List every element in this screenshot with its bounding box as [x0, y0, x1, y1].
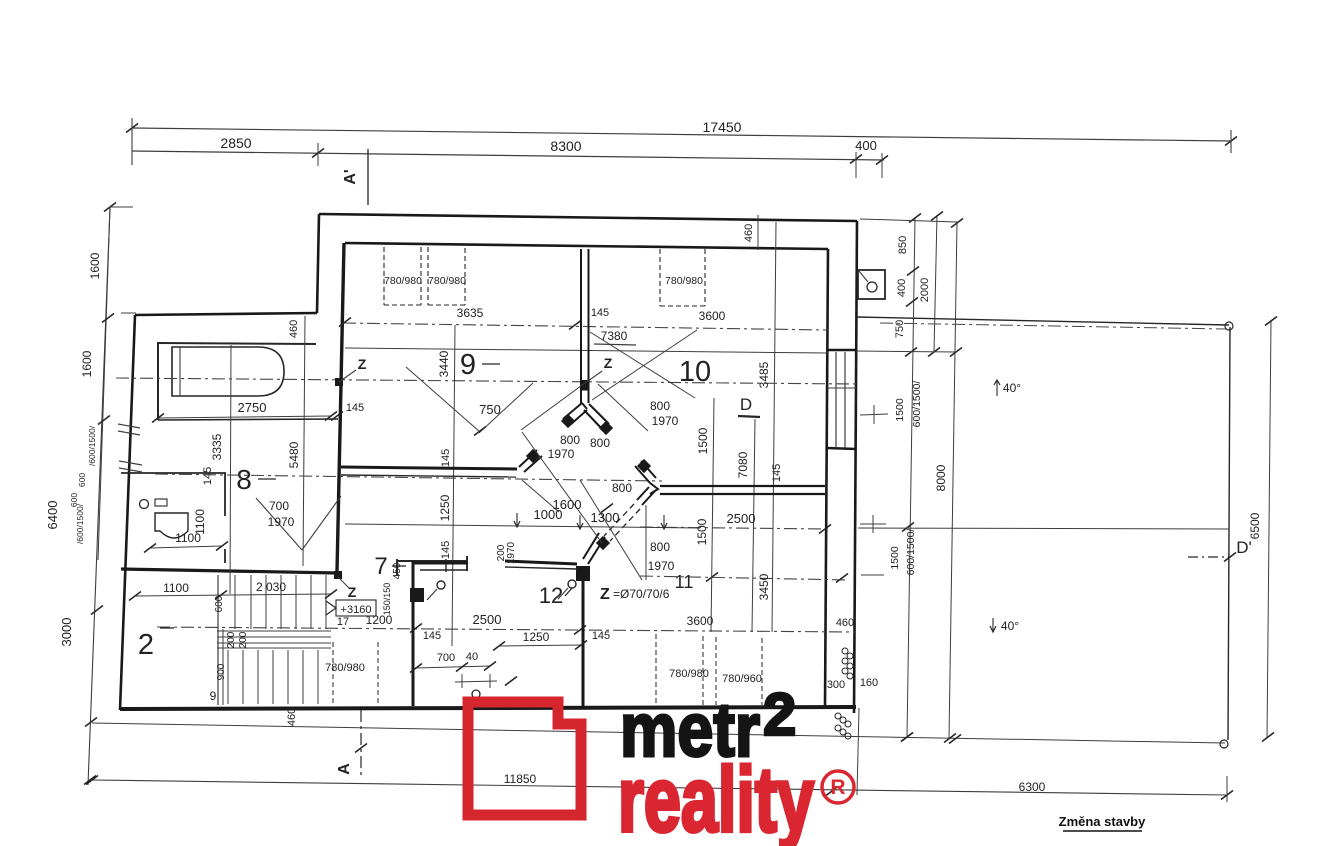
svg-text:/600/1500/: /600/1500/	[87, 425, 97, 466]
svg-text:Z: Z	[604, 355, 613, 371]
svg-text:A': A'	[342, 169, 359, 184]
svg-text:=Ø70/70/6: =Ø70/70/6	[613, 587, 670, 601]
svg-text:1100: 1100	[163, 581, 189, 595]
svg-text:3600: 3600	[687, 614, 714, 628]
svg-text:780/980: 780/980	[428, 275, 466, 287]
svg-text:200: 200	[226, 631, 237, 648]
svg-text:800: 800	[612, 481, 632, 495]
svg-text:/600/1500/: /600/1500/	[75, 503, 85, 544]
svg-text:12: 12	[539, 583, 563, 608]
svg-text:8300: 8300	[550, 138, 581, 154]
svg-text:reality: reality	[618, 749, 814, 846]
svg-text:2750: 2750	[238, 400, 267, 415]
svg-text:400: 400	[855, 138, 877, 153]
svg-text:800: 800	[590, 436, 610, 450]
svg-text:780/960: 780/960	[722, 673, 762, 685]
svg-text:7080: 7080	[736, 451, 750, 478]
svg-text:3335: 3335	[210, 433, 224, 460]
svg-text:1970: 1970	[648, 559, 675, 573]
svg-text:1500: 1500	[696, 427, 710, 454]
svg-text:1000: 1000	[534, 507, 563, 522]
svg-text:600: 600	[214, 595, 225, 612]
svg-text:750: 750	[479, 402, 501, 417]
svg-text:145: 145	[591, 307, 609, 319]
svg-text:1300: 1300	[591, 510, 620, 525]
svg-text:1970: 1970	[548, 447, 575, 461]
svg-text:145: 145	[202, 467, 214, 485]
svg-text:460: 460	[288, 320, 300, 338]
svg-text:450: 450	[392, 562, 403, 579]
svg-text:300: 300	[827, 679, 845, 691]
svg-text:D: D	[740, 395, 752, 414]
svg-text:600/1500/: 600/1500/	[905, 529, 917, 576]
svg-text:1250: 1250	[438, 494, 452, 521]
svg-text:2000: 2000	[919, 278, 931, 302]
svg-text:145: 145	[346, 402, 364, 414]
svg-text:Změna stavby: Změna stavby	[1059, 814, 1146, 829]
svg-text:800: 800	[560, 433, 580, 447]
svg-text:145: 145	[423, 630, 441, 642]
svg-text:1970: 1970	[652, 414, 679, 428]
svg-text:1100: 1100	[193, 509, 207, 535]
svg-text:3485: 3485	[757, 361, 771, 388]
svg-text:400: 400	[896, 279, 908, 297]
svg-text:Z: Z	[600, 586, 610, 603]
svg-text:3450: 3450	[757, 573, 771, 600]
svg-text:850: 850	[897, 236, 909, 254]
svg-text:3000: 3000	[59, 618, 74, 647]
svg-text:2500: 2500	[473, 612, 502, 627]
svg-text:6500: 6500	[1248, 512, 1262, 539]
svg-text:6300: 6300	[1019, 780, 1046, 794]
svg-text:145: 145	[592, 630, 610, 642]
svg-text:1600: 1600	[80, 350, 94, 377]
svg-text:900: 900	[216, 663, 227, 680]
svg-text:5480: 5480	[287, 441, 301, 468]
svg-text:8: 8	[236, 464, 252, 495]
svg-text:160: 160	[860, 677, 878, 689]
svg-text:800: 800	[650, 540, 670, 554]
svg-text:3635: 3635	[457, 306, 484, 320]
svg-text:1250: 1250	[523, 630, 550, 644]
svg-text:7: 7	[374, 553, 387, 580]
svg-text:1600: 1600	[88, 252, 102, 279]
svg-text:600/1500/: 600/1500/	[911, 381, 923, 428]
svg-text:40: 40	[466, 651, 478, 663]
svg-text:780/980: 780/980	[384, 275, 422, 287]
svg-text:600: 600	[77, 473, 87, 487]
svg-text:145: 145	[440, 449, 452, 467]
svg-text:D': D'	[1236, 538, 1252, 557]
svg-text:145: 145	[771, 464, 783, 482]
svg-text:2: 2	[763, 681, 796, 748]
svg-text:200: 200	[238, 631, 249, 648]
svg-text:460: 460	[836, 617, 854, 629]
svg-text:11850: 11850	[504, 772, 537, 786]
svg-text:1500: 1500	[889, 546, 901, 570]
svg-text:9: 9	[460, 349, 476, 381]
svg-text:2500: 2500	[727, 511, 756, 526]
svg-text:2 030: 2 030	[256, 580, 286, 594]
svg-text:145: 145	[440, 541, 452, 559]
svg-text:1500: 1500	[894, 398, 906, 422]
svg-text:1500: 1500	[695, 518, 709, 545]
svg-text:2850: 2850	[220, 135, 251, 151]
svg-text:460: 460	[743, 224, 755, 242]
svg-text:17: 17	[337, 616, 349, 628]
svg-text:10: 10	[679, 356, 711, 388]
svg-text:1970: 1970	[268, 515, 295, 529]
svg-text:780/980: 780/980	[325, 662, 365, 674]
svg-text:Z: Z	[358, 356, 367, 372]
svg-text:800: 800	[650, 399, 670, 413]
svg-text:11: 11	[675, 572, 694, 592]
svg-text:17450: 17450	[703, 119, 742, 135]
svg-text:R: R	[830, 776, 845, 799]
svg-text:9: 9	[210, 689, 217, 703]
svg-text:40°: 40°	[1001, 619, 1019, 633]
svg-text:8000: 8000	[934, 464, 948, 491]
svg-text:700: 700	[269, 499, 289, 513]
svg-text:700: 700	[437, 652, 455, 664]
svg-text:40°: 40°	[1003, 381, 1021, 395]
svg-text:6400: 6400	[45, 501, 60, 530]
svg-text:460: 460	[286, 708, 298, 726]
svg-text:Z: Z	[348, 584, 357, 600]
svg-text:750: 750	[894, 320, 906, 338]
svg-text:3600: 3600	[699, 309, 726, 323]
svg-text:600: 600	[69, 493, 79, 507]
svg-text:2: 2	[138, 629, 154, 661]
svg-text:780/980: 780/980	[665, 275, 703, 287]
svg-text:3440: 3440	[437, 350, 451, 377]
svg-text:A: A	[336, 763, 353, 775]
svg-text:150/150: 150/150	[382, 583, 392, 616]
